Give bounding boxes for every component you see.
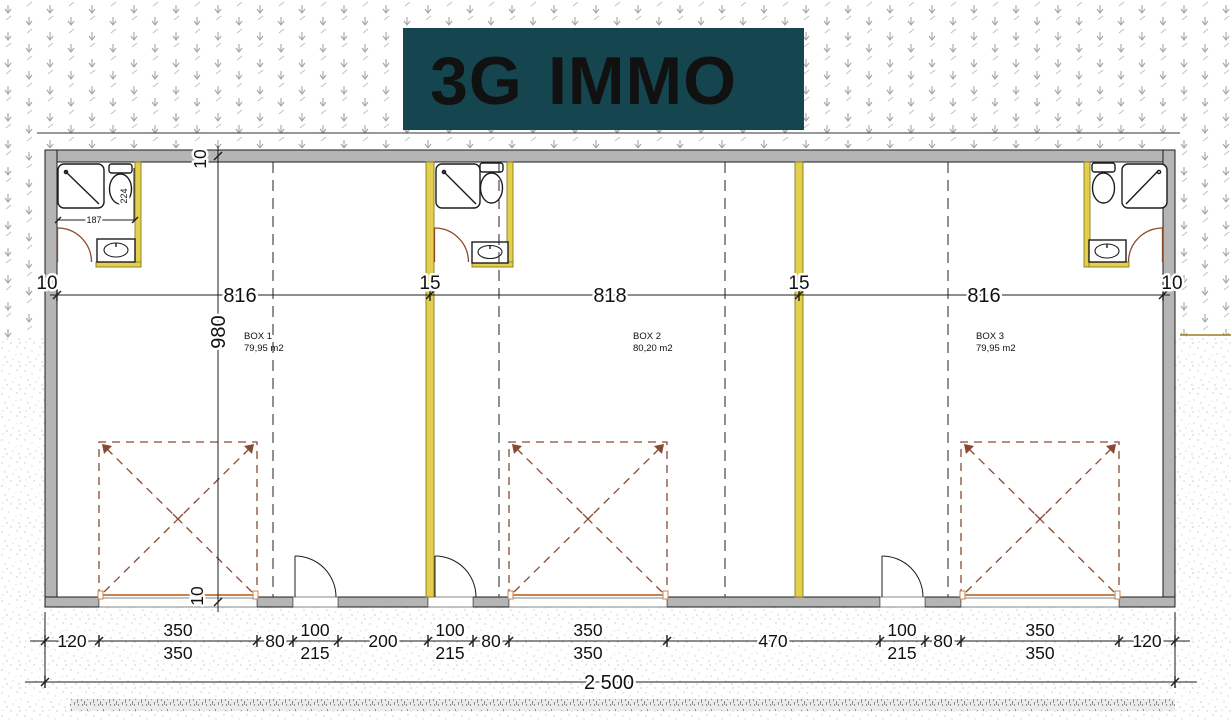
box1-label: BOX 1 bbox=[244, 331, 272, 342]
ground-texture-band bbox=[70, 699, 1175, 711]
partition-wall-2 bbox=[795, 162, 803, 597]
right-wall-thickness-dim: 10 bbox=[1161, 273, 1182, 294]
box1-area: 79,95 m2 bbox=[244, 343, 284, 354]
chain-dim-3a: 100 bbox=[300, 620, 329, 640]
logo-text-3g: 3G bbox=[430, 43, 523, 119]
vanity-symbol-1 bbox=[97, 239, 135, 262]
box2-area: 80,20 m2 bbox=[633, 343, 673, 354]
bathroom-depth-dim: 224 bbox=[119, 188, 129, 203]
logo-text-immo: IMMO bbox=[548, 43, 737, 119]
interior-depth-dim: 980 bbox=[208, 315, 230, 348]
chain-dim-5b: 215 bbox=[435, 643, 464, 663]
bathroom-width-dim: 187 bbox=[86, 215, 101, 225]
building-interior bbox=[45, 150, 1175, 607]
vanity-symbol-2 bbox=[472, 242, 508, 263]
chain-dim-4: 200 bbox=[368, 631, 397, 651]
chain-dim-11b: 350 bbox=[1025, 643, 1054, 663]
top-wall-thickness-dim: 10 bbox=[190, 149, 210, 169]
door-thresholds bbox=[99, 597, 1119, 607]
left-wall-thickness-dim: 10 bbox=[36, 273, 57, 294]
box3-area: 79,95 m2 bbox=[976, 343, 1016, 354]
chain-dim-5a: 100 bbox=[435, 620, 464, 640]
chain-dim-2: 80 bbox=[265, 631, 285, 651]
floor-plan-page: 3G IMMO bbox=[0, 0, 1231, 720]
toilet-symbol-3 bbox=[1092, 163, 1115, 203]
chain-dim-1b: 350 bbox=[163, 643, 192, 663]
box1-width-dim: 816 bbox=[223, 285, 256, 307]
chain-dim-10: 80 bbox=[933, 631, 953, 651]
chain-dim-7a: 350 bbox=[573, 620, 602, 640]
chain-dim-3b: 215 bbox=[300, 643, 329, 663]
partition-wall-1 bbox=[426, 162, 434, 597]
total-width-dim: 2 500 bbox=[584, 672, 634, 694]
chain-dim-1a: 350 bbox=[163, 620, 192, 640]
chain-dim-11a: 350 bbox=[1025, 620, 1054, 640]
toilet-symbol-2 bbox=[480, 163, 503, 203]
shower-symbol-2 bbox=[436, 164, 480, 208]
shower-symbol-1 bbox=[58, 164, 104, 208]
left-wall bbox=[45, 150, 57, 607]
partition1-thickness-dim: 15 bbox=[419, 273, 440, 294]
vanity-symbol-3 bbox=[1089, 240, 1126, 262]
partition2-thickness-dim: 15 bbox=[788, 273, 809, 294]
box2-label: BOX 2 bbox=[633, 331, 661, 342]
bottom-wall-thickness-dim: 10 bbox=[187, 586, 207, 606]
box3-label: BOX 3 bbox=[976, 331, 1004, 342]
chain-dim-8: 470 bbox=[758, 631, 787, 651]
right-wall bbox=[1163, 150, 1175, 607]
chain-dim-7b: 350 bbox=[573, 643, 602, 663]
chain-dim-0: 120 bbox=[57, 631, 86, 651]
box3-width-dim: 816 bbox=[967, 285, 1000, 307]
chain-dim-9b: 215 bbox=[887, 643, 916, 663]
chain-dim-6: 80 bbox=[481, 631, 501, 651]
chain-dim-12: 120 bbox=[1132, 631, 1161, 651]
chain-dim-9a: 100 bbox=[887, 620, 916, 640]
floor-plan-drawing: 3G IMMO bbox=[0, 0, 1231, 720]
shower-symbol-3 bbox=[1122, 164, 1167, 208]
logo: 3G IMMO bbox=[403, 28, 804, 130]
box2-width-dim: 818 bbox=[593, 285, 626, 307]
